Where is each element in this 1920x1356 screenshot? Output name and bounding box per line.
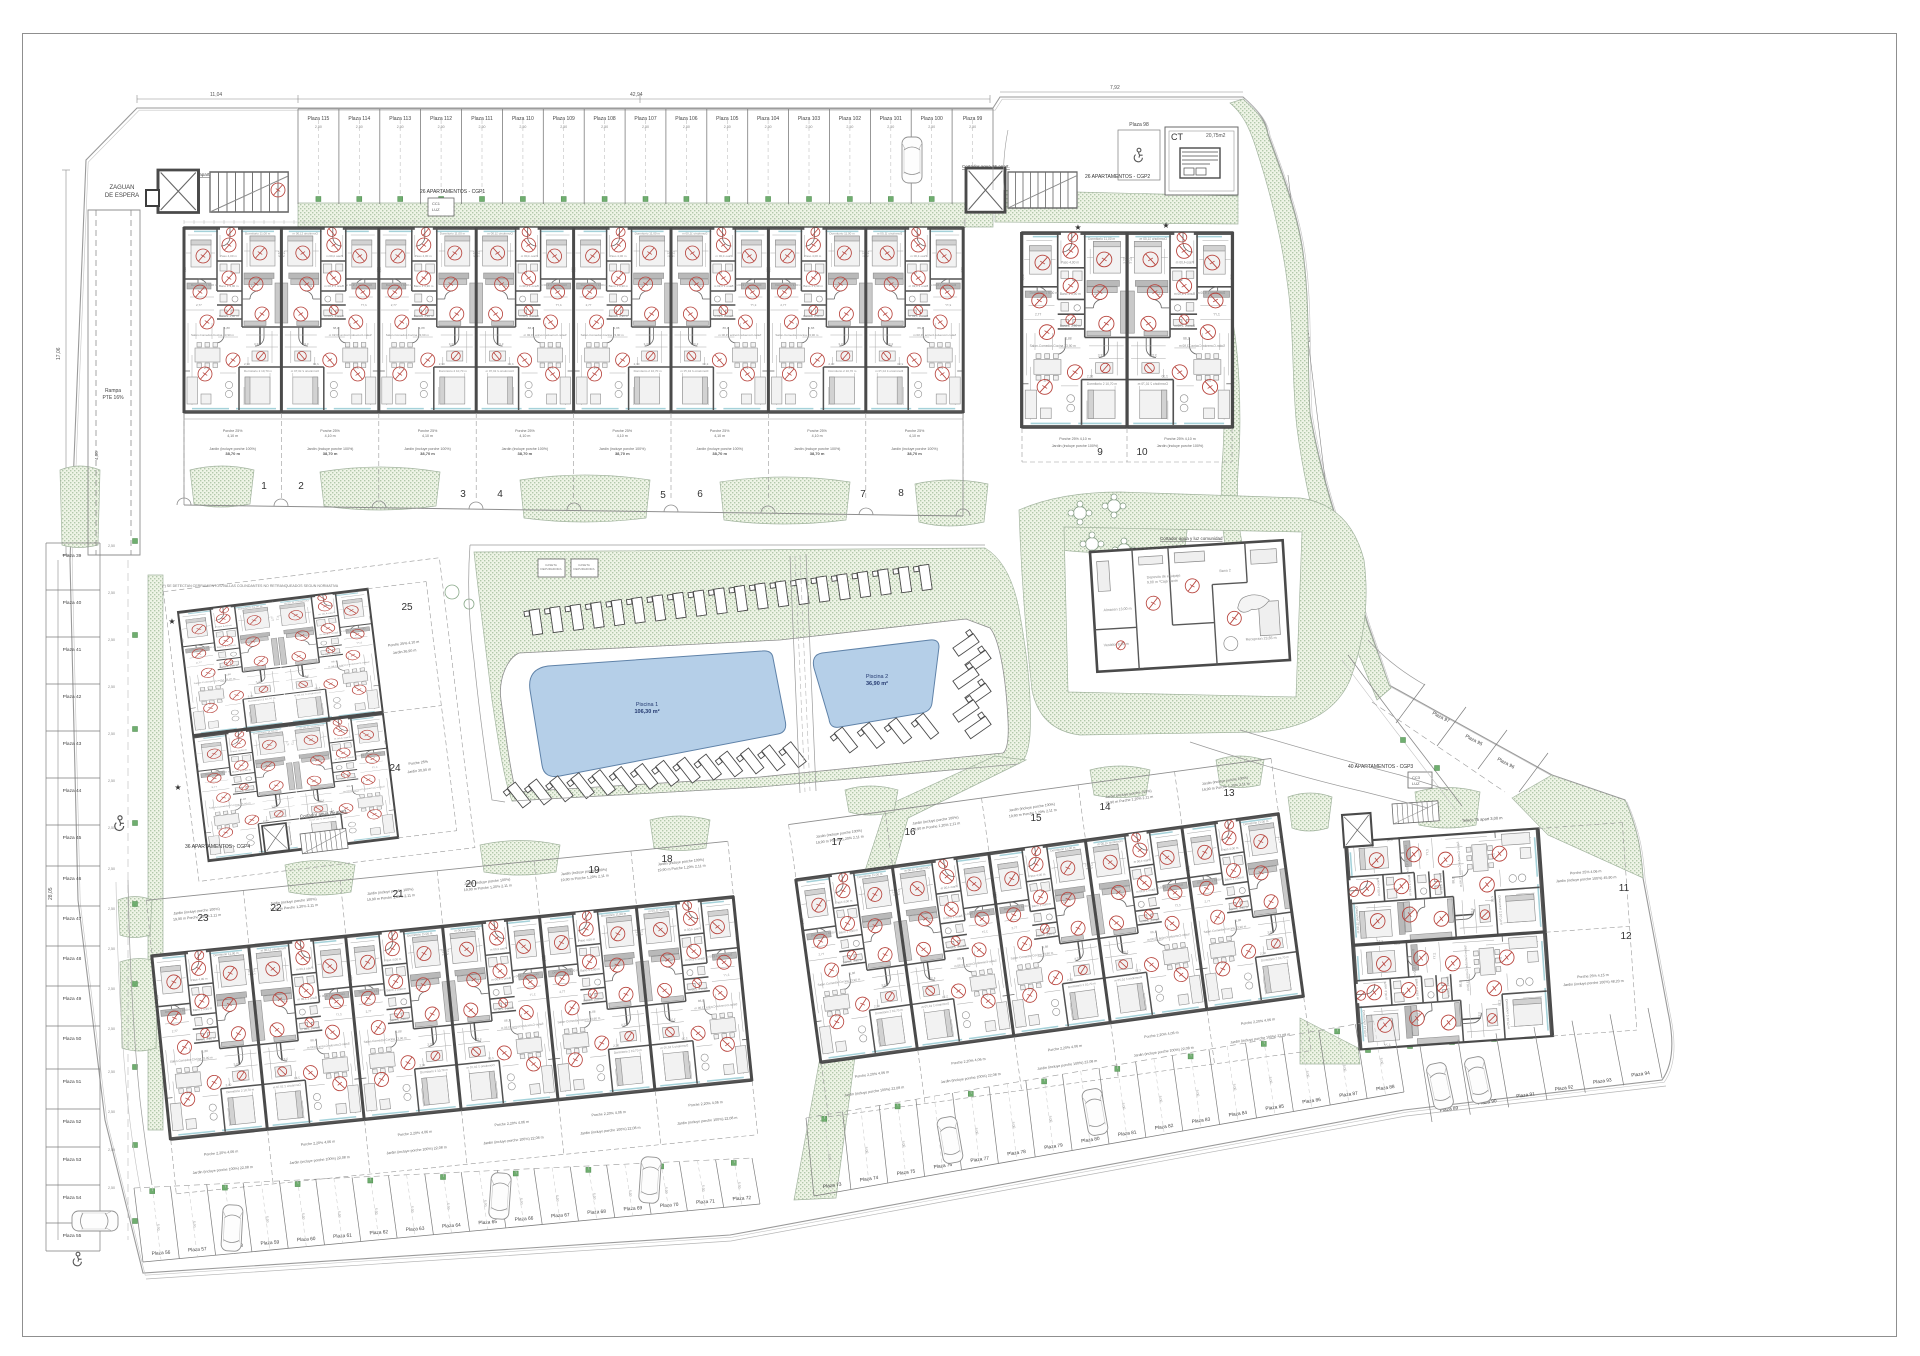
svg-text:4,10 m: 4,10 m [812, 434, 823, 438]
svg-text:5,00: 5,00 [192, 1221, 196, 1228]
svg-text:Porche 25%: Porche 25% [710, 429, 730, 433]
svg-text:2,50: 2,50 [683, 125, 690, 129]
svg-text:2,50: 2,50 [601, 125, 608, 129]
svg-text:Piscina 1: Piscina 1 [636, 702, 658, 708]
svg-text:36,90 m²: 36,90 m² [866, 680, 888, 687]
svg-text:5,00: 5,00 [446, 1203, 450, 1210]
svg-text:19: 19 [588, 865, 600, 876]
svg-text:20: 20 [465, 879, 477, 890]
svg-text:5,00: 5,00 [156, 1224, 160, 1231]
svg-text:7,92: 7,92 [1110, 85, 1120, 91]
svg-text:Porche 25%: Porche 25% [223, 429, 243, 433]
svg-text:Plaza 52: Plaza 52 [63, 1119, 82, 1125]
svg-text:5,00: 5,00 [483, 1200, 487, 1207]
svg-text:22: 22 [270, 903, 282, 914]
svg-text:Porche 25%: Porche 25% [807, 429, 827, 433]
svg-text:3: 3 [460, 489, 466, 500]
svg-text:DE ESPERA: DE ESPERA [105, 193, 139, 199]
svg-text:2,50: 2,50 [397, 125, 404, 129]
svg-text:7: 7 [860, 489, 866, 500]
svg-text:2,50: 2,50 [108, 685, 115, 689]
svg-text:2,50: 2,50 [765, 125, 772, 129]
svg-text:Jardin (incluye porche 100%): Jardin (incluye porche 100%) [1157, 444, 1204, 448]
svg-text:Plaza 45: Plaza 45 [63, 835, 82, 841]
svg-text:5,00: 5,00 [555, 1195, 559, 1202]
svg-text:36 APARTAMENTOS - CGP4: 36 APARTAMENTOS - CGP4 [185, 844, 250, 850]
svg-text:106,30 m²: 106,30 m² [634, 708, 659, 715]
svg-text:26 APARTAMENTOS - CGP1: 26 APARTAMENTOS - CGP1 [420, 189, 485, 195]
svg-text:4,10 m: 4,10 m [325, 434, 336, 438]
svg-text:DEPURADORA: DEPURADORA [573, 567, 594, 571]
svg-text:Plaza 48: Plaza 48 [63, 956, 82, 962]
svg-text:Plaza 102: Plaza 102 [839, 116, 861, 122]
svg-text:Plaza 101: Plaza 101 [880, 116, 902, 122]
svg-text:4,10 m: 4,10 m [422, 434, 433, 438]
svg-text:16: 16 [904, 827, 916, 838]
svg-text:5,00: 5,00 [301, 1213, 305, 1220]
svg-text:Plaza 53: Plaza 53 [63, 1157, 82, 1163]
svg-text:2,50: 2,50 [108, 1186, 115, 1190]
svg-text:38,70 m: 38,70 m [225, 451, 240, 456]
svg-text:5,00: 5,00 [265, 1216, 269, 1223]
svg-text:2,50: 2,50 [108, 907, 115, 911]
svg-text:Porche 25% 4,10 m: Porche 25% 4,10 m [1164, 437, 1196, 441]
svg-text:Porche 25%: Porche 25% [515, 429, 535, 433]
svg-text:Porche 25%: Porche 25% [905, 429, 925, 433]
svg-text:Plaza 50: Plaza 50 [63, 1036, 82, 1042]
svg-text:15: 15 [1030, 813, 1042, 824]
svg-text:38,70 m: 38,70 m [712, 451, 727, 456]
svg-text:4: 4 [497, 489, 503, 500]
svg-text:Plaza 43: Plaza 43 [63, 741, 82, 747]
svg-text:20,75m2: 20,75m2 [1206, 133, 1226, 139]
svg-text:38,70 m: 38,70 m [907, 451, 922, 456]
svg-text:Plaza 108: Plaza 108 [593, 116, 615, 122]
svg-text:Bano 2: Bano 2 [1219, 568, 1231, 573]
svg-text:26 APARTAMENTOS - CGP2: 26 APARTAMENTOS - CGP2 [1085, 174, 1150, 180]
svg-text:38,70 m: 38,70 m [810, 451, 825, 456]
svg-text:Plaza 110: Plaza 110 [512, 116, 534, 122]
svg-text:8: 8 [898, 488, 904, 499]
svg-text:Plaza 113: Plaza 113 [389, 116, 411, 122]
svg-text:14: 14 [1099, 802, 1111, 813]
svg-text:5,00: 5,00 [337, 1211, 341, 1218]
svg-text:DEPURADORA: DEPURADORA [540, 567, 561, 571]
svg-text:★: ★ [174, 783, 181, 792]
svg-text:ZAGUAN: ZAGUAN [109, 185, 134, 191]
svg-text:Porche 25%: Porche 25% [613, 429, 633, 433]
svg-text:38,70 m: 38,70 m [615, 451, 630, 456]
svg-text:24: 24 [389, 763, 401, 774]
svg-text:CT: CT [1171, 132, 1183, 142]
svg-text:4,10 m: 4,10 m [909, 434, 920, 438]
svg-text:28,05: 28,05 [48, 887, 54, 900]
svg-text:13: 13 [1223, 788, 1235, 799]
svg-text:2,50: 2,50 [887, 125, 894, 129]
svg-text:25: 25 [401, 602, 413, 613]
svg-text:38,70 m: 38,70 m [420, 451, 435, 456]
svg-text:(*) SE DETECTAN CERRAMIENTOS/V: (*) SE DETECTAN CERRAMIENTOS/VALLAS COLI… [162, 584, 339, 588]
svg-text:9: 9 [1097, 447, 1103, 458]
svg-text:21: 21 [392, 889, 404, 900]
svg-text:2,50: 2,50 [108, 591, 115, 595]
svg-text:Porche 25%: Porche 25% [320, 429, 340, 433]
svg-text:2,50: 2,50 [108, 947, 115, 951]
svg-text:4,10 m: 4,10 m [617, 434, 628, 438]
svg-text:Plaza 100: Plaza 100 [921, 116, 943, 122]
svg-text:2,50: 2,50 [108, 1110, 115, 1114]
svg-text:Plaza 46: Plaza 46 [63, 876, 82, 882]
svg-text:11,04: 11,04 [210, 92, 222, 98]
svg-text:2,50: 2,50 [724, 125, 731, 129]
svg-text:5,00: 5,00 [701, 1185, 705, 1192]
svg-text:5,00: 5,00 [628, 1190, 632, 1197]
svg-text:5,00: 5,00 [519, 1198, 523, 1205]
svg-text:Plaza 98: Plaza 98 [1129, 122, 1149, 128]
svg-text:LUZ: LUZ [432, 207, 440, 212]
svg-text:CC1: CC1 [432, 201, 441, 206]
svg-text:Plaza 47: Plaza 47 [63, 916, 82, 922]
svg-text:2,50: 2,50 [438, 125, 445, 129]
svg-text:17: 17 [831, 837, 843, 848]
svg-text:12: 12 [1620, 931, 1632, 942]
svg-text:Plaza 54: Plaza 54 [63, 1195, 82, 1201]
svg-text:2,50: 2,50 [108, 1070, 115, 1074]
svg-text:LUZ: LUZ [1412, 781, 1420, 786]
svg-text:2,50: 2,50 [356, 125, 363, 129]
svg-text:Plaza 49: Plaza 49 [63, 996, 82, 1002]
svg-text:18: 18 [661, 854, 673, 865]
svg-text:2,50: 2,50 [969, 125, 976, 129]
svg-text:Plaza 51: Plaza 51 [63, 1079, 82, 1085]
svg-text:Plaza 42: Plaza 42 [63, 694, 82, 700]
svg-text:23: 23 [197, 913, 209, 924]
svg-text:5,00: 5,00 [592, 1193, 596, 1200]
svg-text:Plaza 104: Plaza 104 [757, 116, 779, 122]
svg-text:Plaza 111: Plaza 111 [471, 116, 493, 122]
svg-text:Plaza 114: Plaza 114 [348, 116, 370, 122]
svg-text:2,50: 2,50 [108, 544, 115, 548]
svg-text:Porche 25% 4,10 m: Porche 25% 4,10 m [1059, 437, 1091, 441]
svg-text:Plaza 107: Plaza 107 [634, 116, 656, 122]
svg-text:Plaza 105: Plaza 105 [716, 116, 738, 122]
svg-text:5,00: 5,00 [374, 1208, 378, 1215]
svg-text:5,00: 5,00 [410, 1206, 414, 1213]
svg-text:2,50: 2,50 [846, 125, 853, 129]
svg-text:4,00: 4,00 [94, 451, 99, 460]
svg-text:40 APARTAMENTOS - CGP3: 40 APARTAMENTOS - CGP3 [1348, 764, 1413, 770]
svg-text:10: 10 [1136, 447, 1148, 458]
svg-text:2,50: 2,50 [108, 1027, 115, 1031]
svg-text:Porche 25%: Porche 25% [418, 429, 438, 433]
svg-text:2,50: 2,50 [108, 1148, 115, 1152]
svg-text:5,00: 5,00 [737, 1182, 741, 1189]
svg-text:2,50: 2,50 [108, 779, 115, 783]
svg-text:6: 6 [697, 489, 703, 500]
svg-text:2,50: 2,50 [108, 987, 115, 991]
svg-text:5: 5 [660, 490, 666, 501]
svg-text:2,50: 2,50 [928, 125, 935, 129]
svg-text:4,10 m: 4,10 m [714, 434, 725, 438]
svg-text:Plaza 41: Plaza 41 [63, 647, 82, 653]
svg-text:11: 11 [1619, 883, 1630, 894]
svg-text:2,50: 2,50 [315, 125, 322, 129]
svg-text:2,50: 2,50 [108, 638, 115, 642]
svg-text:Rampa: Rampa [105, 388, 121, 394]
svg-text:Plaza 109: Plaza 109 [553, 116, 575, 122]
svg-text:2,50: 2,50 [806, 125, 813, 129]
svg-text:2,50: 2,50 [642, 125, 649, 129]
svg-text:Cortador agua y luz comunidad: Cortador agua y luz comunidad [1160, 536, 1223, 541]
svg-text:Plaza 55: Plaza 55 [63, 1233, 82, 1239]
svg-text:2,50: 2,50 [108, 826, 115, 830]
svg-text:38,70 m: 38,70 m [323, 451, 338, 456]
svg-text:Plaza 40: Plaza 40 [63, 600, 82, 606]
svg-text:★: ★ [1074, 223, 1081, 232]
svg-text:1: 1 [261, 481, 267, 492]
svg-text:★: ★ [1162, 221, 1169, 230]
svg-text:Plaza 39: Plaza 39 [63, 553, 82, 559]
svg-text:Jardin (incluye porche 100%): Jardin (incluye porche 100%) [1052, 444, 1099, 448]
svg-text:Plaza 112: Plaza 112 [430, 116, 452, 122]
svg-text:2: 2 [298, 481, 304, 492]
svg-text:2,50: 2,50 [560, 125, 567, 129]
svg-text:38,70 m: 38,70 m [518, 451, 533, 456]
svg-text:2,50: 2,50 [108, 732, 115, 736]
svg-text:42,94: 42,94 [630, 92, 643, 98]
svg-text:4,10 m: 4,10 m [227, 434, 238, 438]
svg-text:2,50: 2,50 [108, 867, 115, 871]
svg-text:Plaza 106: Plaza 106 [675, 116, 697, 122]
svg-text:2,50: 2,50 [519, 125, 526, 129]
svg-text:4,10 m: 4,10 m [519, 434, 530, 438]
svg-text:★: ★ [168, 617, 175, 626]
svg-text:Plaza 99: Plaza 99 [963, 116, 983, 122]
svg-text:17,06: 17,06 [56, 347, 62, 360]
svg-text:Plaza 103: Plaza 103 [798, 116, 820, 122]
svg-text:2,50: 2,50 [479, 125, 486, 129]
svg-text:Piscina 2: Piscina 2 [866, 674, 888, 680]
svg-text:5,00: 5,00 [664, 1187, 668, 1194]
svg-text:Plaza 44: Plaza 44 [63, 788, 82, 794]
svg-text:PTE 16%: PTE 16% [102, 395, 124, 401]
svg-text:Plaza 115: Plaza 115 [307, 116, 329, 122]
